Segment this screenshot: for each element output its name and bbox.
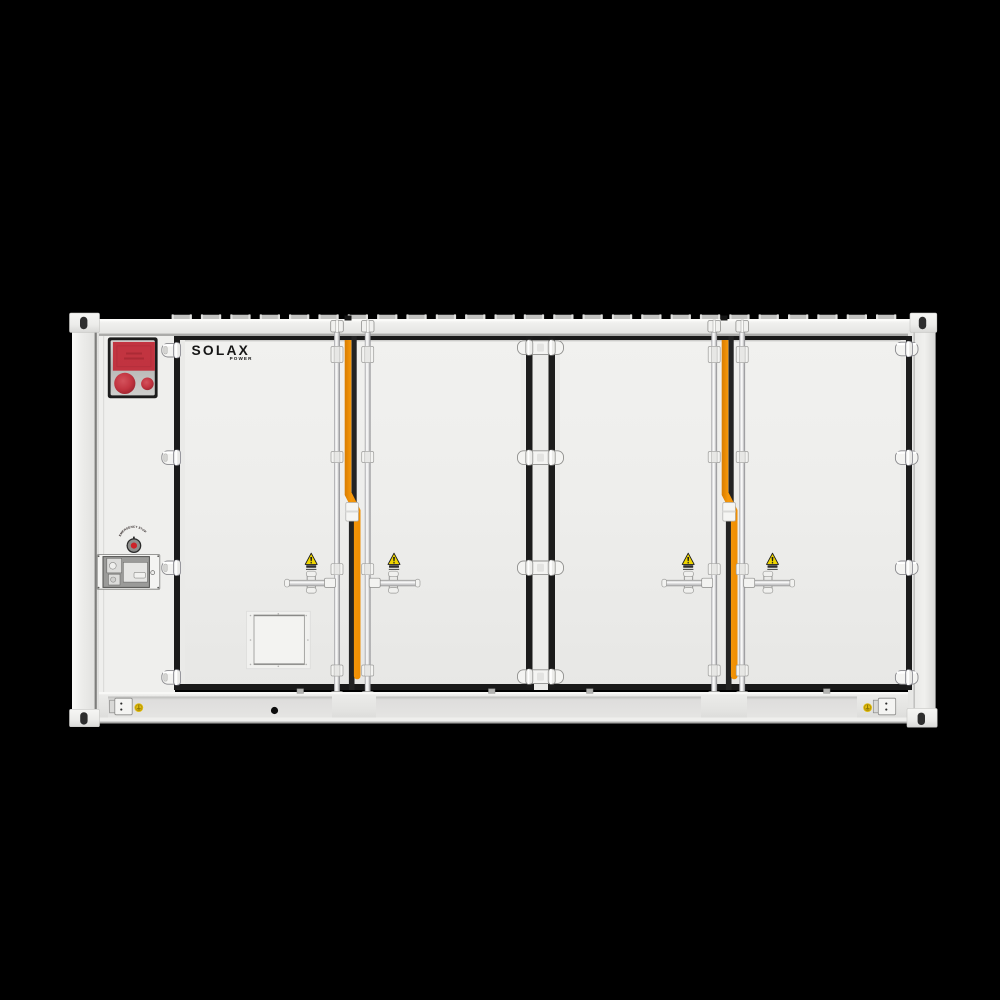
svg-text:POWER: POWER [230, 356, 253, 361]
